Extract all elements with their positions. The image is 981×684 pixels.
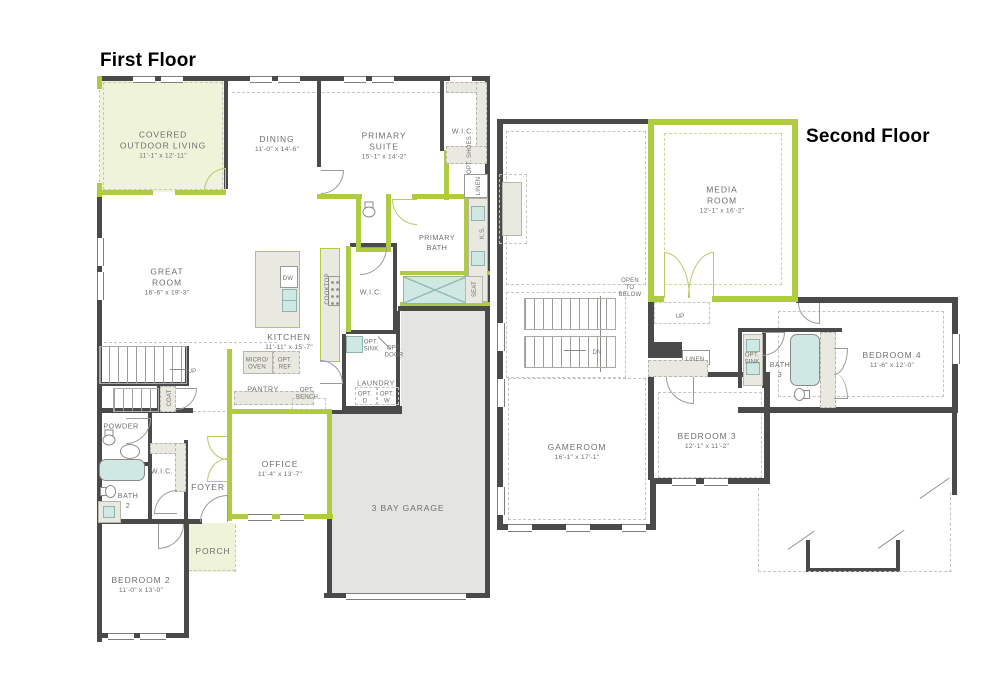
stairs xyxy=(524,336,616,368)
window xyxy=(497,323,505,351)
wall xyxy=(650,478,656,530)
window xyxy=(566,524,590,532)
label-dn: DN xyxy=(592,343,601,357)
roofline-dash xyxy=(950,492,951,572)
second-floor-plan: Second Floor xyxy=(0,0,981,684)
window xyxy=(704,478,728,486)
room-dims: 11'-6" x 12'-0" xyxy=(862,362,921,371)
label-opt-sink: OPT. SINK xyxy=(745,346,760,367)
wall xyxy=(497,119,650,124)
bathtub xyxy=(790,334,820,386)
room-name: DN xyxy=(592,350,601,356)
window xyxy=(672,478,696,486)
room-dims: 16'-1" x 17'-1" xyxy=(548,454,607,463)
green-wall xyxy=(648,119,654,302)
room-name: MEDIA ROOM xyxy=(706,185,737,206)
room-dims: 12'-1" x 16'-2" xyxy=(700,208,745,217)
floorplan-canvas: First Floor xyxy=(0,0,981,684)
stairs xyxy=(524,298,616,330)
room-name: BEDROOM 3 xyxy=(677,431,736,441)
second-floor-title: Second Floor xyxy=(806,126,930,148)
roof-tick xyxy=(878,530,905,549)
room-label-bath3: BATH 3 xyxy=(770,351,791,379)
room-name: OPEN TO BELOW xyxy=(619,278,642,298)
roofline-dash xyxy=(758,488,759,572)
green-wall xyxy=(648,119,798,125)
wall xyxy=(896,540,900,572)
fireplace xyxy=(502,182,522,236)
window xyxy=(497,379,505,407)
room-name: BATH 3 xyxy=(770,360,791,378)
room-name: LINEN xyxy=(686,357,705,363)
ceiling-dash xyxy=(506,131,646,285)
room-label-bedroom4: BEDROOM 4 11'-6" x 12'-0" xyxy=(862,339,921,371)
room-name: OPT. SINK xyxy=(745,353,760,366)
toilet xyxy=(794,390,810,401)
room-dims: 12'-1" x 11'-2" xyxy=(677,443,736,452)
room-name: GAMEROOM xyxy=(548,442,607,452)
green-wall xyxy=(792,119,798,302)
label-open-to-below: OPEN TO BELOW xyxy=(619,271,642,299)
wall xyxy=(796,297,958,303)
dn-arrow xyxy=(564,350,586,351)
wall xyxy=(648,302,654,346)
room-label-bedroom3: BEDROOM 3 12'-1" x 11'-2" xyxy=(677,420,736,452)
wall xyxy=(738,330,742,388)
window xyxy=(508,524,532,532)
label-up: UP xyxy=(676,307,685,321)
roof-tick xyxy=(788,531,815,550)
window xyxy=(622,524,646,532)
roofline-dash xyxy=(758,571,952,572)
wall xyxy=(738,407,958,413)
wall xyxy=(648,342,682,358)
room-label-gameroom: GAMEROOM 16'-1" x 17'-1" xyxy=(548,431,607,463)
wall xyxy=(648,376,654,480)
room-name: BEDROOM 4 xyxy=(862,350,921,360)
wall xyxy=(764,372,770,484)
window xyxy=(497,487,505,515)
window xyxy=(952,334,960,364)
room-name: UP xyxy=(676,314,685,320)
room-label-media-room: MEDIA ROOM 12'-1" x 16'-2" xyxy=(700,174,745,217)
label-linen: LINEN xyxy=(686,350,705,364)
roof-tick xyxy=(920,477,950,498)
wall xyxy=(952,411,957,495)
